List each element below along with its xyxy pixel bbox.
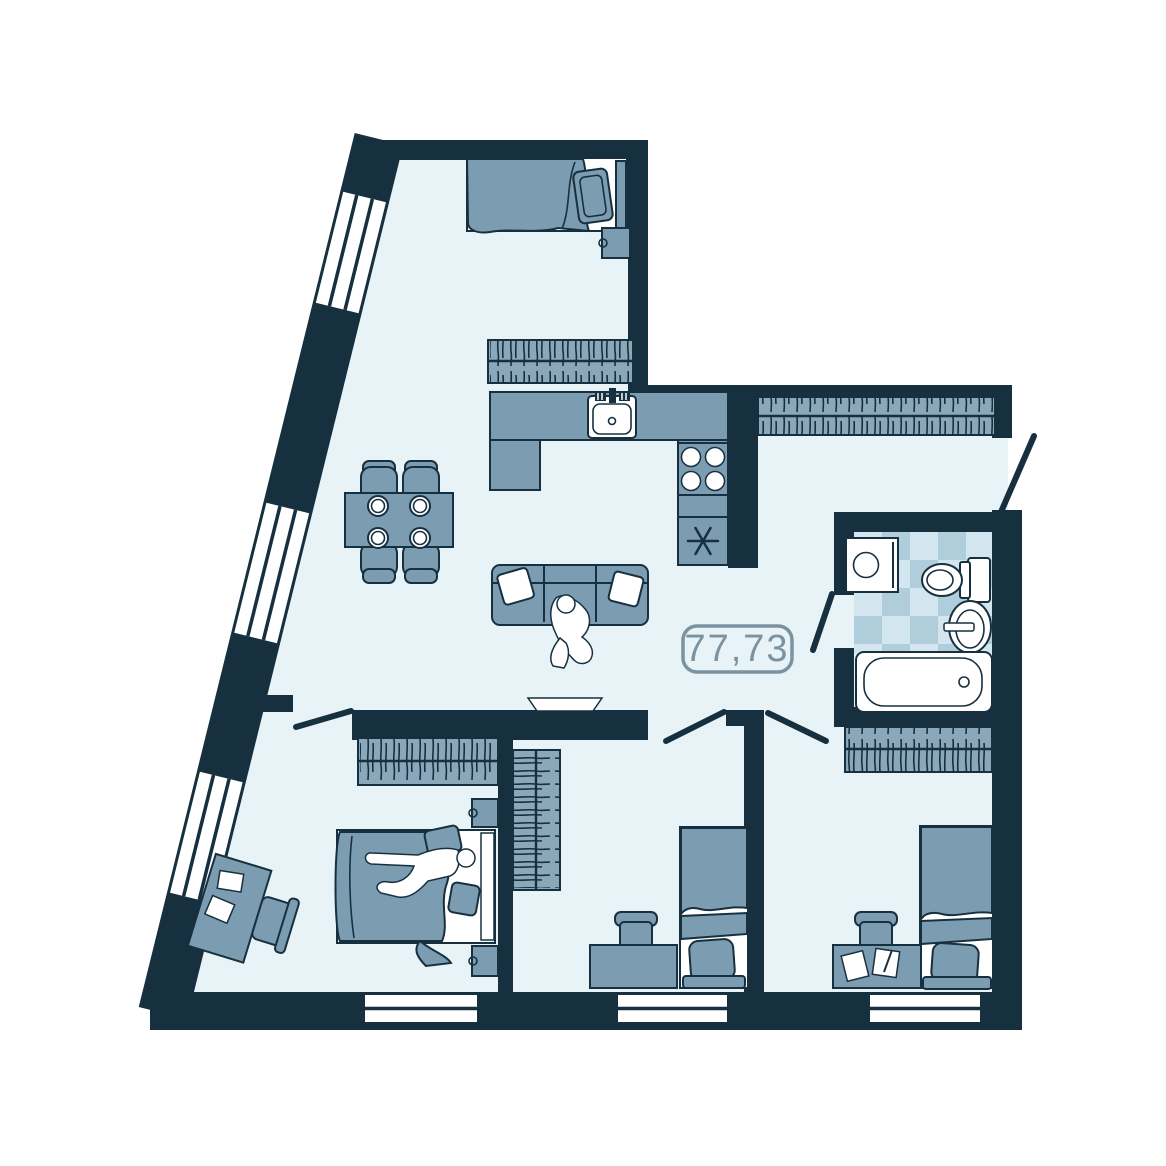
wall-bathroom-top — [834, 512, 1022, 532]
dining-table-icon — [345, 493, 453, 547]
papers-icon — [217, 871, 244, 893]
window-icon — [365, 995, 477, 1022]
washing-machine-icon — [846, 538, 898, 592]
chair-icon — [361, 543, 397, 583]
kitchen-sink-icon — [588, 388, 636, 438]
nightstand-icon — [469, 946, 498, 976]
fridge-icon — [678, 517, 728, 565]
closet-icon — [513, 750, 560, 890]
bottom-windows — [365, 995, 980, 1022]
wall-kitchen-right — [728, 385, 758, 568]
pillow-icon — [608, 571, 644, 607]
window-icon — [618, 995, 727, 1022]
wall-living-stub — [256, 695, 293, 712]
chair-icon — [855, 912, 897, 949]
nightstand-icon — [599, 228, 630, 258]
area-badge-text: 77,73 — [684, 628, 789, 670]
wardrobe-icon — [358, 738, 498, 785]
bathtub-icon — [856, 652, 992, 712]
floor-plan-page: 77,73 — [0, 0, 1166, 1166]
wall-living-bedrooms — [352, 710, 648, 740]
nightstand-icon — [469, 799, 498, 827]
kitchen-counter — [490, 440, 540, 490]
wardrobe-icon — [845, 727, 992, 772]
floor-plan: 77,73 — [0, 0, 1166, 1166]
pillow-icon — [448, 882, 481, 916]
wall-right-main — [992, 510, 1022, 1030]
double-bed-icon — [467, 158, 627, 233]
wardrobe-icon — [758, 397, 995, 435]
desk-icon — [590, 945, 677, 988]
chair-icon — [615, 912, 657, 949]
single-bed-icon — [680, 827, 748, 988]
single-bed-icon — [920, 826, 993, 989]
wardrobe-icon — [488, 340, 633, 383]
chair-icon — [403, 543, 439, 583]
area-badge: 77,73 — [683, 626, 792, 672]
wall-master-divider — [498, 740, 513, 992]
tv-icon — [528, 698, 602, 711]
window-icon — [870, 995, 980, 1022]
papers-icon — [872, 948, 899, 977]
